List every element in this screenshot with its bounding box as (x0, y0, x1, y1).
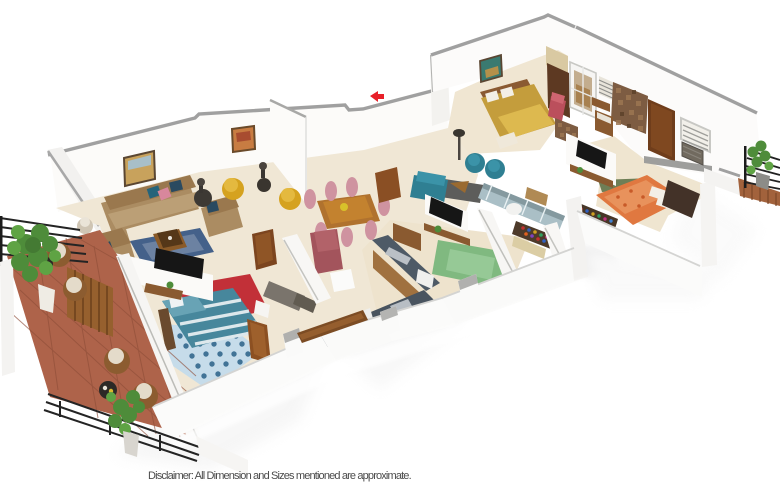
svg-text:Disclaimer: All Dimension and: Disclaimer: All Dimension and Sizes ment… (148, 470, 412, 482)
